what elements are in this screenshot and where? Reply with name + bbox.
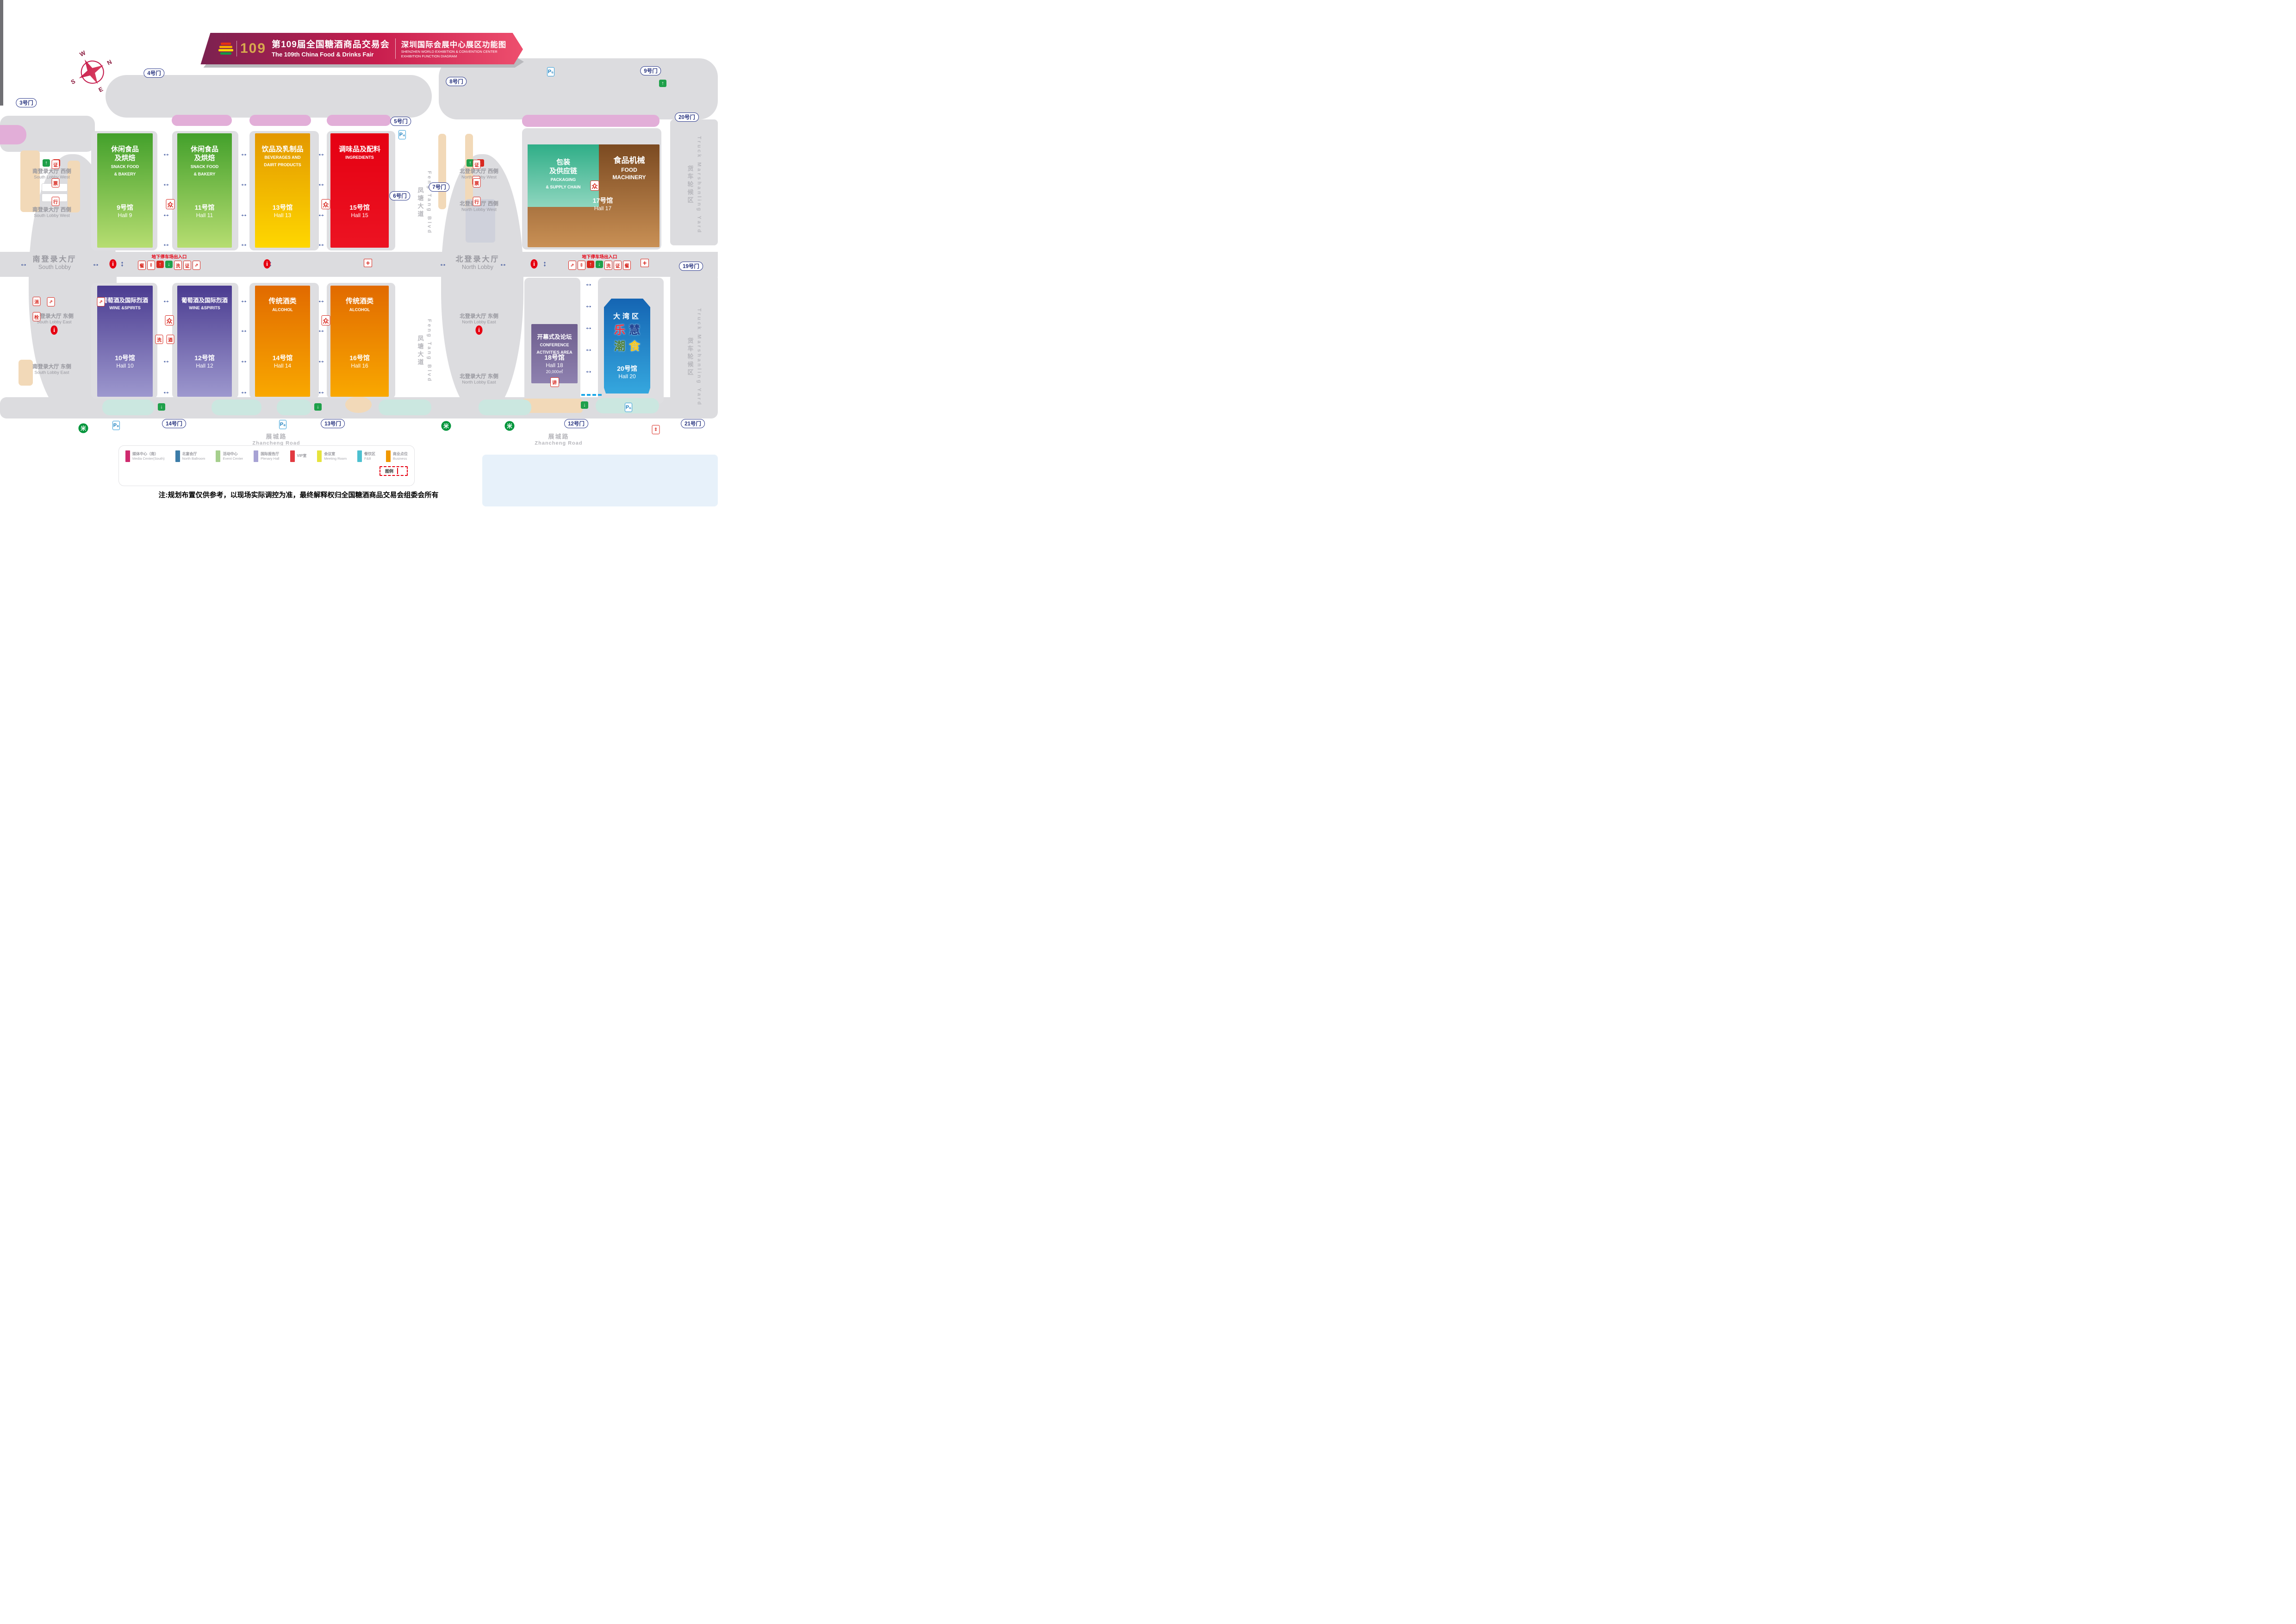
legend-area-en: F&B [364,456,375,461]
lobby-en: South Lobby East [32,370,71,375]
legend-area-cn: 国际报告厅 [261,452,279,456]
hall-cn: 包装 [528,158,599,167]
legend-area-en: North Ballroom [182,456,205,461]
hall-number-block: 12号馆Hall 12 [177,352,232,369]
logo-number: 109 [236,41,266,56]
hall-category-en: WINE &SPIRITS [97,304,153,312]
lobby-cn: 北登录大厅 东侧 [460,312,498,320]
parking-icon: P₈ [279,420,286,429]
lobby-label: 北登录大厅 东侧North Lobby East [460,373,498,385]
hall-category-cn: 饮品及乳制品 [255,145,310,154]
hall-17-packaging-label: 包装及供应链PACKAGING& SUPPLY CHAIN [528,158,599,191]
gate-14号门: 14号门 [162,419,186,428]
banner-title-cn: 第109届全国糖酒商品交易会 [272,39,390,51]
gate-13号门: 13号门 [321,419,345,428]
legend-area-en: Media Center(South) [132,456,165,461]
exit-icon: ↑ [43,159,50,167]
flow-arrow-icon: ↔ [317,296,325,305]
vip-parking-area [19,360,33,386]
info-icon: i [264,259,271,269]
legend-area-item: 会议室Meeting Room [317,450,347,462]
hall-20: 大湾区乐慧潮食20号馆Hall 20 [604,299,650,394]
compass-s: S [69,78,76,86]
flow-arrow-icon: ↔ [585,344,593,354]
flow-arrow-icon: ↔ [162,149,170,158]
hall-art-char: 乐 [613,321,626,337]
truck-parking-area [277,400,311,415]
legend-area-en: Plenary Hall [261,456,279,461]
road-en: Truck Marshanling Yard [697,136,702,234]
hall-category-cn: 葡萄酒及国际烈酒 [97,297,153,304]
flow-arrow-icon: ↔ [162,179,170,188]
venue-map: 109 第109届全国糖酒商品交易会 The 109th China Food … [0,0,718,508]
parking-cluster-icon: ↑ [587,261,594,268]
hall-11: 休闲食品及烘焙SNACK FOOD& BAKERY11号馆Hall 11 [177,133,232,248]
parking-cluster-icon: 餐 [138,261,146,270]
road-en: Truck Marshanling Yard [697,308,702,406]
legend-area-label: 国际报告厅Plenary Hall [261,452,279,461]
hall-category-block: 调味品及配料INGREDIENTS [330,145,389,162]
hall-12: 葡萄酒及国际烈酒WINE &SPIRITS12号馆Hall 12 [177,286,232,397]
hall-art-characters: 乐慧潮食 [604,321,650,353]
hall-category-cn: 葡萄酒及国际烈酒 [177,297,232,304]
hall-number: 17号馆 [580,196,625,205]
hall-category-block: 传统酒类ALCOHOL [330,297,389,313]
hall-category-en: & BAKERY [177,170,232,178]
parking-cluster-icon: ⇗ [193,261,200,270]
hall-name: Hall 17 [580,205,625,212]
hall-number-block: 14号馆Hall 14 [255,352,310,369]
entrance-icon: ↑ [659,80,666,87]
road-en: Feng Tang Blvd [427,319,432,383]
truck-parking-area [379,400,431,415]
hall-number: 18号馆 [531,353,578,362]
gate-9号门: 9号门 [640,66,661,75]
legend-color-chip [216,450,220,462]
legend-area-label: 活动中心Event Center [223,452,243,461]
hall-number: 14号馆 [255,353,310,362]
lobby-cn: 南登录大厅 东侧 [32,363,71,370]
metro-icon: 米 [442,421,451,431]
parking-cluster-icon: ⇕ [147,261,155,270]
hall-art-char: 慧 [628,321,641,337]
hall-category-en: & BAKERY [97,170,153,178]
escalator-icon: ⇗ [47,297,55,306]
hall-14: 传统酒类ALCOHOL14号馆Hall 14 [255,286,310,397]
flow-arrow-icon: ↔ [585,323,593,332]
flow-arrow-icon: ↔ [240,387,248,396]
legend-color-chip [290,450,295,462]
badge-icon: 证 [473,160,481,169]
hall-13: 饮品及乳制品BEVERAGES ANDDAIRT PRODUCTS13号馆Hal… [255,133,310,248]
lobby-cn: 南登录大厅 东侧 [35,312,74,320]
underground-parking-label: 地下停车场出入口 [568,253,631,260]
truck-parking-area [479,400,531,415]
legend-area-item: 国际报告厅Plenary Hall [254,450,279,462]
flow-arrow-icon: ↔ [162,356,170,365]
banner-title-en: The 109th China Food & Drinks Fair [272,51,390,58]
meeting-point-icon: 众 [322,199,330,209]
hall-name: Hall 14 [255,362,310,369]
gate-20号门: 20号门 [675,112,699,122]
hall-category-en: DAIRT PRODUCTS [255,161,310,169]
parking-cluster-icon: 洗 [604,261,612,270]
info-icon: i [476,325,483,335]
hall-number-block: 13号馆Hall 13 [255,202,310,219]
luggage-icon: 行 [473,197,481,206]
hall-category-cn: 休闲食品 [97,145,153,154]
lobby-label: 南登录大厅 西侧South Lobby West [32,206,71,219]
gate-7号门: 7号门 [429,182,449,192]
underground-parking-cluster: 地下停车场出入口 ⇗⇕↑↓洗证餐 [568,253,631,270]
hall-number: 13号馆 [255,203,310,212]
hall-name: Hall 13 [255,212,310,219]
metro-icon: 米 [79,424,88,433]
barrier-dash-line [581,394,602,396]
flow-arrow-icon: ↔ [439,259,447,269]
lobby-en: South Lobby West [32,213,71,219]
gate-3号门: 3号门 [16,98,37,107]
truck-parking-area [212,400,261,415]
flow-arrow-icon: ↔ [585,279,593,288]
legend-color-chip [386,450,391,462]
flow-arrow-icon: ↔ [317,210,325,219]
hall-number: 9号馆 [97,203,153,212]
lobby-en: North Lobby [455,264,499,270]
hall-name: Hall 10 [97,362,153,369]
map-note: 注:规划布置仅供参考，以现场实际调控为准，最终解释权归全国糖酒商品交易会组委会所… [159,490,439,500]
road-en: Feng Tang Blvd [427,171,432,235]
hall-number-block: 10号馆Hall 10 [97,352,153,369]
meeting-point-icon: 众 [591,181,599,191]
flow-arrow-icon: ↔ [162,239,170,249]
gate-4号门: 4号门 [143,69,164,78]
taxi-strip [0,125,26,144]
hall-art-block: 大湾区乐慧潮食 [604,312,650,354]
hall-category-block: 葡萄酒及国际烈酒WINE &SPIRITS [177,297,232,312]
road-cn: 货车轮候区 [686,136,695,234]
banner-subtitle-block: 深圳国际会展中心展区功能图 SHENZHEN WORLD EXHIBITION … [395,38,507,59]
lobby-label: 南登录大厅South Lobby [32,253,76,270]
hall-category-cn: 及烘焙 [177,154,232,163]
hall-en: FOOD [599,166,660,174]
hall-category-en: SNACK FOOD [97,163,153,170]
road-label: 凤塘大道Feng Tang Blvd [416,171,432,235]
road-label: 展城路Zhancheng Road [535,432,582,446]
ticket-icon: 票 [52,178,60,187]
hall-category-en: BEVERAGES AND [255,154,310,161]
legend-area-cn: 活动中心 [223,452,243,456]
ticket-icon: 票 [473,178,481,187]
road-cn: 展城路 [535,432,582,441]
hall-number-block: 17号馆Hall 17 [580,195,625,212]
parking-cluster-icon: 证 [614,261,622,270]
lobby-cn: 南登录大厅 西侧 [32,206,71,213]
lobby-label: 北登录大厅North Lobby [455,253,499,270]
legend-color-chip [357,450,362,462]
taxi-strip [522,115,660,127]
hall-name: Hall 18 [531,362,578,369]
hall-category-block: 休闲食品及烘焙SNACK FOOD& BAKERY [177,145,232,178]
banner-subtitle-cn: 深圳国际会展中心展区功能图 [401,38,507,50]
flow-arrow-icon: ↔ [585,301,593,310]
legend-color-chip [317,450,322,462]
legend-area-label: 会议室Meeting Room [324,452,347,461]
hall-number: 20号馆 [604,364,650,373]
hall-number: 10号馆 [97,353,153,362]
legend-area-cn: VIP室 [297,454,307,458]
hall-category-cn: 开幕式及论坛 [531,333,578,341]
flow-arrow-icon: ↔ [317,356,325,365]
legend-area-cn: 北宴会厅 [182,452,205,456]
taxi-strip [172,115,232,126]
flow-arrow-icon: ↔ [162,296,170,305]
hall-category-cn: 调味品及配料 [330,145,389,154]
legend-facilities-box: 图例 [380,466,408,476]
legend-color-chip [125,450,130,462]
flow-arrow-icon: ↔ [162,210,170,219]
exit-icon: ↓ [314,403,322,411]
lobby-en: South Lobby East [35,320,74,325]
hall-en: MACHINERY [599,174,660,181]
elevator-icon: ⇕ [652,425,660,434]
hall-en: & SUPPLY CHAIN [528,183,599,191]
legend-area-item: 媒体中心（南）Media Center(South) [125,450,165,462]
legend-area-item: 餐饮区F&B [357,450,375,462]
legend-area-cn: 商业点位 [393,452,408,456]
underground-parking-label: 地下停车场出入口 [138,253,200,260]
flow-arrow-icon: ↔ [240,179,248,188]
edge-strip [0,0,3,106]
hall-category-en: CONFERENCE [531,341,578,349]
flow-arrow-icon: ↔ [317,179,325,188]
parking-cluster-icon: ↓ [596,261,603,268]
flow-arrow-icon: ↔ [240,356,248,365]
legend-area-item: VIP室 [290,450,307,462]
compass-w: W [79,49,87,58]
logo-icon [218,43,233,55]
info-icon: i [531,259,538,269]
flow-arrow-icon: ↔ [317,387,325,396]
hall-16: 传统酒类ALCOHOL16号馆Hall 16 [330,286,389,397]
legend-card: 媒体中心（南）Media Center(South)北宴会厅North Ball… [118,445,415,486]
hall-9: 休闲食品及烘焙SNACK FOOD& BAKERY9号馆Hall 9 [97,133,153,248]
compass-n: N [106,58,113,67]
taxi-strip [327,115,391,126]
truck-parking-area [102,400,154,415]
fair-logo: 109 [218,41,266,56]
road-cn: 凤塘大道 [416,319,425,383]
banner-subtitle-en1: SHENZHEN WORLD EXHIBITION & CONVENTION C… [401,50,507,54]
flow-arrow-icon: ↔ [240,210,248,219]
hall-category-block: 休闲食品及烘焙SNACK FOOD& BAKERY [97,145,153,178]
hall-cn: 食品机械 [599,156,660,166]
legend-area-cn: 媒体中心（南） [132,452,165,456]
fair-banner: 109 第109届全国糖酒商品交易会 The 109th China Food … [199,33,523,64]
escalator-icon: ⇗ [97,297,105,306]
hall-number-block: 16号馆Hall 16 [330,352,389,369]
exit-icon: ↓ [581,401,588,409]
hall-cn: 及供应链 [528,167,599,176]
flow-arrow-icon: ↔ [162,387,170,396]
flow-arrow-icon: ↔ [240,325,248,335]
hall-art-char: 食 [628,337,641,353]
legend-area-en: Business [393,456,408,461]
road-label: 货车轮候区Truck Marshanling Yard [686,136,702,234]
flow-arrow-icon: ↔ [585,366,593,375]
luggage-icon: 行 [52,197,60,206]
hall-number: 16号馆 [330,353,389,362]
hall-number-block: 20号馆Hall 20 [604,363,650,380]
legend-area-label: VIP室 [297,454,307,458]
gate-19号门: 19号门 [679,262,703,271]
services-legend-panel [482,455,718,506]
hall-17-machinery-label: 食品机械FOODMACHINERY [599,156,660,181]
hall-name: Hall 20 [604,373,650,380]
hall-category-en: ALCOHOL [255,306,310,313]
hall-category-cn: 休闲食品 [177,145,232,154]
medical-cross-icon: + [641,259,649,267]
medical-cross-icon: + [364,259,372,267]
road-en: Zhancheng Road [535,441,582,446]
parking-icon: P₄ [398,130,406,139]
lobby-label: 北登录大厅 东侧North Lobby East [460,312,498,325]
hall-number: 11号馆 [177,203,232,212]
parking-cluster-icon: 餐 [623,261,631,270]
banner-subtitle-en2: EXHIBITION FUNCTION DIAGRAM [401,54,507,59]
hall-name: Hall 9 [97,212,153,219]
gate-5号门: 5号门 [390,117,411,126]
legend-area-cn: 会议室 [324,452,347,456]
flow-arrow-icon: ↔ [317,325,325,335]
legend-area-item: 北宴会厅North Ballroom [175,450,205,462]
road-cn: 货车轮候区 [686,308,695,406]
hall-category-cn: 及烘焙 [97,154,153,163]
hall-category-cn: 传统酒类 [255,297,310,306]
road-label: 凤塘大道Feng Tang Blvd [416,319,432,383]
gate-21号门: 21号门 [681,419,705,428]
hall-number-block: 18号馆Hall 1820,000㎡讲 [531,352,578,387]
parking-cluster-icon: 洗 [174,261,182,270]
hydrant-icon: 栓 [33,312,41,321]
legend-box-title: 图例 [385,468,398,474]
road-cn: 凤塘大道 [416,171,425,235]
legend-color-chip [175,450,180,462]
hall-15: 调味品及配料INGREDIENTS15号馆Hall 15 [330,133,389,248]
hall-18: 开幕式及论坛CONFERENCEACTIVITIES AREA18号馆Hall … [531,324,578,383]
hall-category-en: WINE &SPIRITS [177,304,232,312]
flow-arrow-icon: ↔ [317,149,325,158]
info-icon: i [51,325,58,335]
vip-parking-area [345,396,372,413]
flow-arrow-icon: ↔ [499,259,507,269]
legend-area-cn: 餐饮区 [364,452,375,456]
legend-area-en: Meeting Room [324,456,347,461]
badge-icon: 证 [52,160,60,169]
compass-e: E [97,86,104,94]
gate-6号门: 6号门 [389,191,410,200]
parking-cluster-icon: ↑ [156,261,164,268]
parking-cluster-icon: ↓ [165,261,173,268]
flow-arrow-icon: ↔ [317,239,325,249]
fire-command-icon: 消 [33,297,41,306]
hall-art-char: 潮 [613,337,626,353]
info-icon: i [110,259,117,269]
lobby-cn: 南登录大厅 [32,253,76,264]
hall-category-block: 传统酒类ALCOHOL [255,297,310,313]
parking-icon: P₈ [112,421,120,430]
lobby-cn: 北登录大厅 东侧 [460,373,498,380]
hall-category-block: 葡萄酒及国际烈酒WINE &SPIRITS [97,297,153,312]
conference-podium-icon: 讲 [550,377,559,387]
parking-cluster-icon: 证 [183,261,191,270]
lobby-label: 南登录大厅 东侧South Lobby East [35,312,74,325]
hall-category-en: SNACK FOOD [177,163,232,170]
legend-area-label: 餐饮区F&B [364,452,375,461]
legend-area-item: 商业点位Business [386,450,408,462]
hall-name: Hall 12 [177,362,232,369]
hall-number: 15号馆 [330,203,389,212]
hall-en: PACKAGING [528,176,599,183]
parking-cluster-icon: ⇗ [568,261,576,270]
vip-parking-area [438,134,446,209]
hall-name: Hall 16 [330,362,389,369]
hall-category-cn: 传统酒类 [330,297,389,306]
lobby-en: North Lobby East [460,320,498,325]
taxi-strip [249,115,311,126]
flow-arrow-icon: ↔ [240,296,248,305]
gate-8号门: 8号门 [446,77,467,86]
lobby-en: North Lobby East [460,380,498,385]
flow-arrow-icon: ↔ [92,259,100,269]
hall-category-en: INGREDIENTS [330,154,389,161]
hall-area: 20,000㎡ [531,369,578,375]
flow-arrow-icon: ↕ [543,259,547,269]
lobby-label: 南登录大厅 东侧South Lobby East [32,363,71,375]
lobby-en: South Lobby [32,264,76,270]
road-label: 货车轮候区Truck Marshanling Yard [686,308,702,406]
hall-number-block: 11号馆Hall 11 [177,202,232,219]
vip-parking-area [20,150,40,212]
flow-arrow-icon: ↔ [20,259,28,269]
hall-number-block: 15号馆Hall 15 [330,202,389,219]
gate-12号门: 12号门 [564,419,588,428]
flow-arrow-icon: ↔ [240,239,248,249]
metro-icon: 米 [505,421,515,431]
legend-color-chip [254,450,258,462]
meeting-point-icon: 众 [166,199,175,209]
hall-art-title: 大湾区 [604,312,650,321]
legend-area-label: 北宴会厅North Ballroom [182,452,205,461]
road-cn: 展城路 [252,432,300,441]
hall-number: 12号馆 [177,353,232,362]
underground-parking-cluster: 地下停车场出入口 餐⇕↑↓洗证⇗ [138,253,200,270]
hall-17: 包装及供应链PACKAGING& SUPPLY CHAIN食品机械FOODMAC… [528,144,660,247]
parking-cluster-icon: ⇕ [578,261,585,270]
lobby-cn: 北登录大厅 [455,253,499,264]
hall-category-block: 饮品及乳制品BEVERAGES ANDDAIRT PRODUCTS [255,145,310,169]
flow-arrow-icon: ↕ [120,259,124,269]
self-washing-icon: 洗 [156,335,163,344]
parking-icon: P₅ [547,67,554,76]
meeting-point-icon: 众 [165,315,174,325]
banner-title-block: 第109届全国糖酒商品交易会 The 109th China Food & Dr… [272,39,390,58]
road-shape [106,75,432,118]
road-label: 展城路Zhancheng Road [252,432,300,446]
flow-arrow-icon: ↔ [240,149,248,158]
legend-area-label: 媒体中心（南）Media Center(South) [132,452,165,461]
hall-category-en: ALCOHOL [330,306,389,313]
